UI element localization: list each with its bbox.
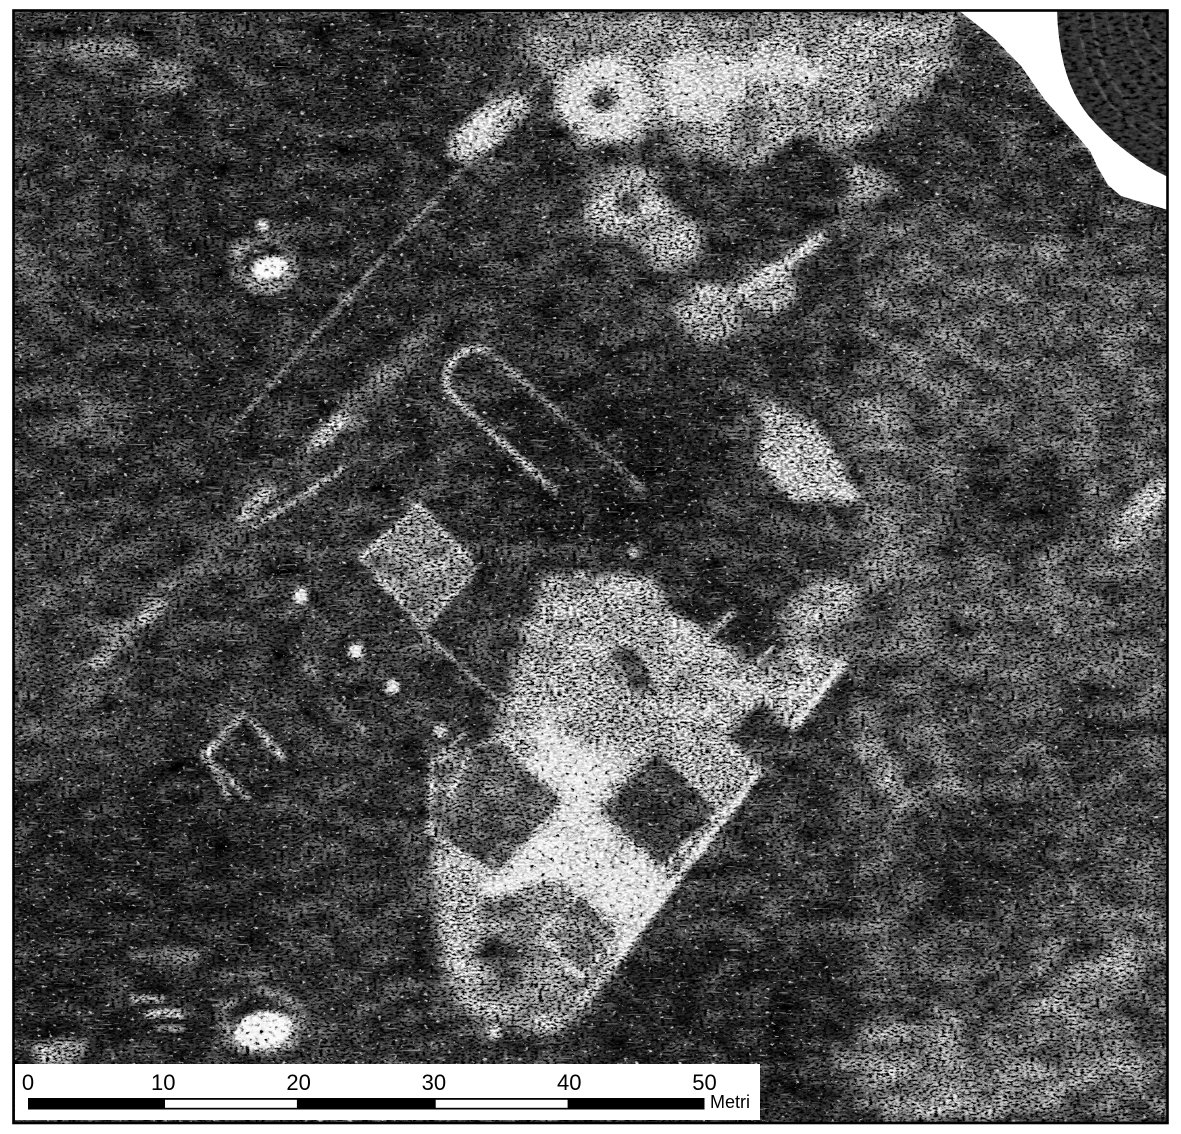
svg-text:10: 10 xyxy=(151,1070,175,1095)
svg-text:30: 30 xyxy=(422,1070,446,1095)
svg-text:40: 40 xyxy=(557,1070,581,1095)
svg-text:Metri: Metri xyxy=(710,1092,750,1112)
svg-text:20: 20 xyxy=(286,1070,310,1095)
svg-text:0: 0 xyxy=(22,1070,34,1095)
